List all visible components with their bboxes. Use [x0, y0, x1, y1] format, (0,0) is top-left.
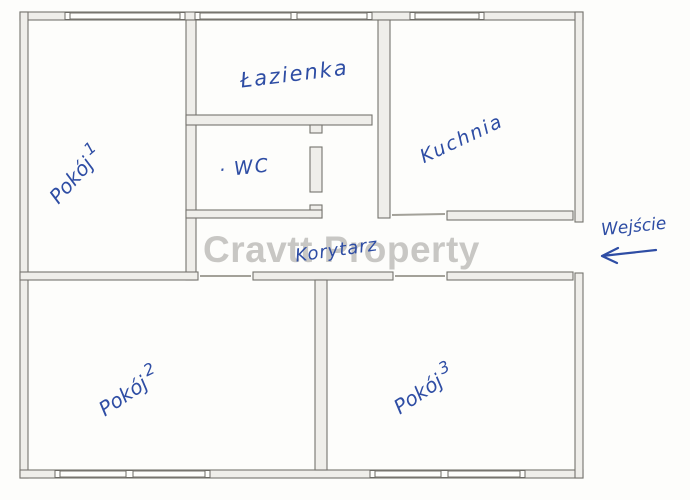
wall-corridor-bottom-right: [447, 272, 573, 280]
window-kuchnia: [412, 13, 482, 19]
window-jamb: [520, 471, 525, 478]
wall-outer-right-lower: [575, 273, 583, 478]
entrance-arrow-icon: [592, 242, 660, 266]
window-jamb: [370, 471, 375, 478]
window-jamb: [195, 13, 200, 20]
wall-kuchnia-left: [378, 20, 390, 218]
door-opening-kuchnia: [392, 214, 445, 215]
wall-pokoj1-right: [186, 20, 196, 280]
wall-pokoj1-bottom: [20, 272, 198, 280]
windows-top-wall: [65, 13, 484, 20]
window-jamb: [55, 471, 60, 478]
window-jamb: [410, 13, 415, 20]
window-jamb: [205, 471, 210, 478]
wall-kuchnia-bottom: [447, 211, 573, 220]
wall-outer-right-upper: [575, 12, 583, 222]
window-lazienka: [197, 13, 370, 19]
floor-plan-canvas: Cravtt Property Pokój1 Łazienka ·WC Kuch…: [0, 0, 690, 500]
window-pokoj1: [67, 13, 183, 19]
wall-wc-right-mid: [310, 147, 322, 192]
window-jamb: [180, 13, 185, 20]
wall-pokoj2-pokoj3-divider: [315, 280, 327, 470]
window-mullion: [126, 471, 133, 478]
wall-outer-left: [20, 12, 28, 478]
room-label-text: WC: [233, 154, 271, 180]
ink-dot: ·: [218, 159, 228, 182]
wall-wc-bottom: [186, 210, 322, 218]
window-jamb: [65, 13, 70, 20]
window-jamb: [367, 13, 372, 20]
window-mullion: [291, 13, 297, 20]
window-jamb: [479, 13, 484, 20]
wall-lazienka-bottom: [186, 115, 372, 125]
wall-wc-right-top: [310, 125, 322, 133]
wall-corridor-bottom-left: [253, 272, 393, 280]
window-mullion: [441, 471, 448, 478]
